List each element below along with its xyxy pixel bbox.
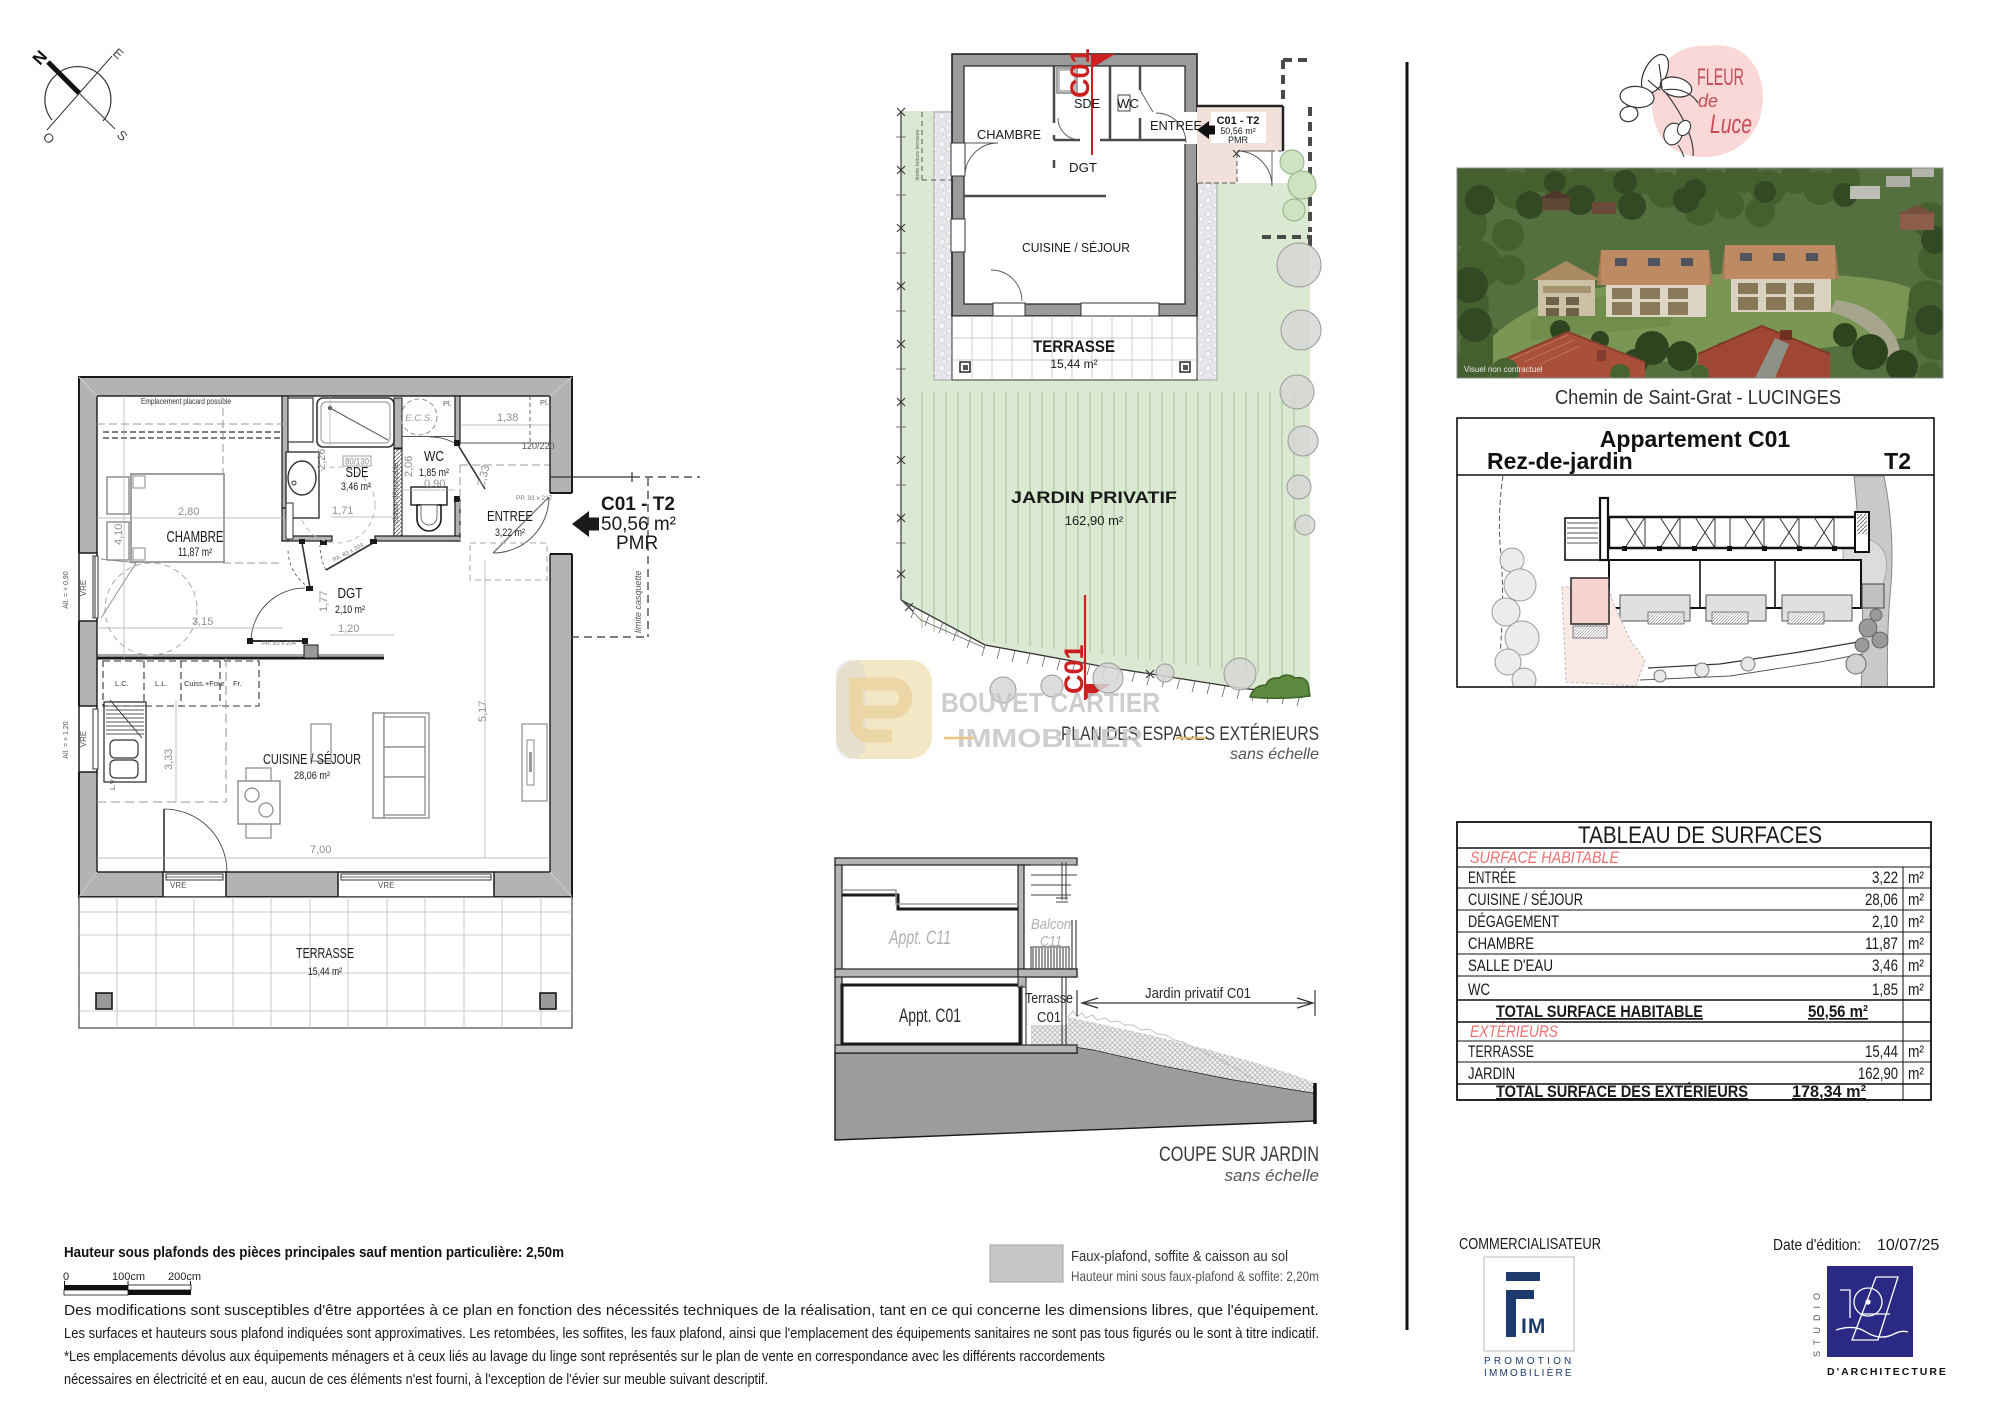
svg-text:m²: m²	[1908, 935, 1924, 953]
svg-text:PA. 83 x 204: PA. 83 x 204	[262, 641, 297, 647]
svg-text:WC: WC	[1117, 96, 1139, 111]
svg-text:120/220: 120/220	[522, 441, 555, 451]
svg-text:TABLEAU DE SURFACES: TABLEAU DE SURFACES	[1578, 822, 1822, 849]
svg-text:SDE: SDE	[346, 464, 369, 481]
svg-text:Les surfaces et hauteurs sous: Les surfaces et hauteurs sous plafond in…	[64, 1325, 1319, 1342]
svg-text:ENTRÉE: ENTRÉE	[1468, 868, 1516, 887]
svg-text:TERRASSE: TERRASSE	[1033, 337, 1115, 356]
svg-text:COUPE SUR JARDIN: COUPE SUR JARDIN	[1159, 1143, 1319, 1166]
svg-text:11,87 m²: 11,87 m²	[178, 547, 212, 559]
svg-text:E: E	[110, 45, 127, 62]
svg-text:DGT: DGT	[338, 585, 363, 602]
svg-text:28,06: 28,06	[1865, 891, 1898, 909]
svg-text:50,56 m²: 50,56 m²	[601, 514, 676, 535]
svg-text:WC: WC	[424, 448, 444, 465]
svg-text:Pl.: Pl.	[540, 398, 549, 407]
svg-text:DÉGAGEMENT: DÉGAGEMENT	[1468, 912, 1559, 931]
svg-text:CHAMBRE: CHAMBRE	[1468, 935, 1534, 953]
svg-text:PMR: PMR	[1228, 135, 1249, 145]
svg-text:C01: C01	[1065, 48, 1095, 98]
svg-text:3,22: 3,22	[1872, 869, 1898, 887]
svg-text:1,85: 1,85	[1872, 981, 1898, 999]
svg-text:Fr.: Fr.	[233, 679, 242, 688]
svg-text:Hauteur sous plafonds des pièc: Hauteur sous plafonds des pièces princip…	[64, 1244, 564, 1261]
svg-text:SURFACE HABITABLE: SURFACE HABITABLE	[1470, 848, 1620, 867]
svg-text:C01: C01	[1037, 1009, 1061, 1026]
svg-text:CHAMBRE: CHAMBRE	[167, 529, 224, 546]
svg-text:15,44: 15,44	[1865, 1043, 1898, 1061]
svg-text:m²: m²	[1908, 913, 1924, 931]
svg-text:2,80: 2,80	[178, 506, 199, 518]
svg-text:VRE: VRE	[170, 881, 186, 890]
svg-text:COMMERCIALISATEUR: COMMERCIALISATEUR	[1459, 1236, 1601, 1253]
svg-text:Chemin de Saint-Grat - LUCINGE: Chemin de Saint-Grat - LUCINGES	[1555, 387, 1841, 409]
svg-text:L.V: L.V	[110, 779, 117, 790]
svg-text:11,87: 11,87	[1865, 935, 1898, 953]
svg-text:CHAMBRE: CHAMBRE	[977, 127, 1041, 142]
svg-text:JARDIN PRIVATIF: JARDIN PRIVATIF	[1011, 488, 1177, 507]
svg-text:EXTÉRIEURS: EXTÉRIEURS	[1470, 1022, 1559, 1041]
svg-text:4,10: 4,10	[113, 524, 125, 545]
svg-text:m²: m²	[1908, 869, 1924, 887]
svg-text:3,33: 3,33	[163, 749, 175, 770]
svg-text:2,10: 2,10	[1872, 913, 1898, 931]
svg-text:Balcon: Balcon	[1031, 916, 1071, 933]
svg-text:1,71: 1,71	[332, 505, 353, 517]
svg-text:Visuel non contractuel: Visuel non contractuel	[1464, 365, 1543, 374]
svg-text:L.L.: L.L.	[155, 679, 168, 688]
svg-text:CUISINE / SÉJOUR: CUISINE / SÉJOUR	[1022, 240, 1130, 255]
svg-text:SALLE D'EAU: SALLE D'EAU	[1468, 957, 1553, 975]
svg-text:2,06: 2,06	[403, 456, 415, 477]
svg-text:Appt. C11: Appt. C11	[888, 928, 951, 949]
svg-text:*Les emplacements dévolus aux: *Les emplacements dévolus aux équipement…	[64, 1348, 1105, 1365]
svg-text:162,90: 162,90	[1858, 1065, 1898, 1083]
svg-text:O: O	[40, 129, 58, 147]
svg-text:All. = + 0,90: All. = + 0,90	[63, 571, 70, 608]
svg-text:162,90 m²: 162,90 m²	[1065, 513, 1124, 528]
svg-text:m²: m²	[1908, 1043, 1924, 1061]
svg-text:m²: m²	[1908, 957, 1924, 975]
svg-text:m²: m²	[1908, 981, 1924, 999]
svg-text:10/07/25: 10/07/25	[1877, 1237, 1939, 1254]
svg-text:IMMOBILIÈRE: IMMOBILIÈRE	[1484, 1366, 1574, 1379]
svg-text:BOUVET CARTIER: BOUVET CARTIER	[941, 687, 1160, 718]
svg-text:Appt. C01: Appt. C01	[899, 1006, 961, 1027]
svg-text:28,06 m²: 28,06 m²	[294, 770, 330, 782]
svg-text:Jardin privatif C01: Jardin privatif C01	[1145, 985, 1251, 1002]
svg-text:Emplacement placard possible: Emplacement placard possible	[141, 396, 231, 406]
svg-text:1,77: 1,77	[318, 591, 330, 612]
svg-text:3,22 m²: 3,22 m²	[495, 527, 525, 539]
svg-text:VRE: VRE	[79, 731, 88, 747]
svg-text:D'ARCHITECTURE: D'ARCHITECTURE	[1827, 1366, 1948, 1378]
svg-text:Cuiss.+Four: Cuiss.+Four	[184, 679, 225, 688]
svg-text:Luce: Luce	[1710, 109, 1752, 139]
svg-text:0: 0	[63, 1271, 69, 1283]
svg-text:sans échelle: sans échelle	[1230, 746, 1319, 763]
svg-text:2,10 m²: 2,10 m²	[335, 604, 365, 616]
svg-text:L.C.: L.C.	[115, 679, 129, 688]
svg-text:3,46: 3,46	[1872, 957, 1898, 975]
svg-text:CUISINE / SÉJOUR: CUISINE / SÉJOUR	[263, 751, 361, 768]
svg-text:7,00: 7,00	[310, 844, 331, 856]
svg-text:TERRASSE: TERRASSE	[296, 946, 354, 962]
svg-text:FLEUR: FLEUR	[1697, 64, 1744, 91]
svg-text:PP. 93 x 217: PP. 93 x 217	[516, 495, 553, 502]
svg-text:ENTREE: ENTREE	[1150, 118, 1202, 133]
svg-text:1,85 m²: 1,85 m²	[419, 467, 449, 479]
svg-text:S: S	[114, 127, 131, 144]
svg-text:80/130: 80/130	[345, 457, 369, 467]
svg-text:PA. 83 x 204: PA. 83 x 204	[332, 542, 365, 564]
svg-text:WC: WC	[1468, 981, 1490, 999]
svg-text:VRE: VRE	[79, 580, 88, 596]
svg-text:178,34 m²: 178,34 m²	[1792, 1082, 1866, 1101]
svg-text:3,46 m²: 3,46 m²	[341, 481, 371, 493]
svg-text:0,90: 0,90	[424, 478, 445, 490]
svg-text:Hauteur mini sous faux-plafond: Hauteur mini sous faux-plafond & soffite…	[1071, 1268, 1319, 1284]
svg-text:DGT: DGT	[1069, 160, 1097, 175]
svg-text:Date d'édition:: Date d'édition:	[1773, 1237, 1861, 1254]
svg-text:STUDIO: STUDIO	[1812, 1287, 1822, 1357]
svg-text:2,33: 2,33	[475, 464, 492, 488]
svg-text:2,26: 2,26	[316, 449, 328, 470]
svg-text:VRE: VRE	[378, 881, 394, 890]
svg-text:1,38: 1,38	[497, 412, 518, 424]
svg-text:PROMOTION: PROMOTION	[1484, 1356, 1574, 1367]
svg-text:N: N	[29, 47, 51, 69]
svg-text:m²: m²	[1908, 891, 1924, 909]
svg-text:Des modifications sont suscept: Des modifications sont susceptibles d'êt…	[64, 1302, 1319, 1319]
svg-text:limite toiture terrasse: limite toiture terrasse	[915, 129, 921, 180]
svg-text:sans échelle: sans échelle	[1224, 1166, 1319, 1185]
svg-text:ENTREE: ENTREE	[487, 508, 533, 525]
svg-text:5,17: 5,17	[477, 701, 489, 722]
svg-text:TOTAL SURFACE DES EXTÉRIEURS: TOTAL SURFACE DES EXTÉRIEURS	[1496, 1082, 1748, 1101]
svg-text:de: de	[1698, 91, 1718, 111]
svg-text:cloison démontable: cloison démontable	[393, 463, 400, 523]
svg-text:3,15: 3,15	[192, 616, 213, 628]
svg-text:SDE: SDE	[1074, 96, 1100, 111]
svg-text:nécessaires en électricité et: nécessaires en électricité et en eau, au…	[64, 1371, 768, 1388]
svg-text:100cm: 100cm	[112, 1271, 145, 1283]
svg-text:JARDIN: JARDIN	[1468, 1065, 1515, 1083]
svg-text:1,20: 1,20	[338, 623, 359, 635]
svg-text:C01 - T2: C01 - T2	[601, 494, 675, 515]
svg-text:15,44 m²: 15,44 m²	[1050, 357, 1097, 371]
svg-text:Rez-de-jardin: Rez-de-jardin	[1487, 448, 1633, 474]
svg-text:50,56 m²: 50,56 m²	[1808, 1002, 1868, 1021]
svg-text:Pl.: Pl.	[443, 399, 452, 408]
svg-text:15,44 m²: 15,44 m²	[308, 966, 342, 978]
svg-text:T2: T2	[1884, 448, 1911, 474]
svg-text:TOTAL SURFACE HABITABLE: TOTAL SURFACE HABITABLE	[1496, 1002, 1703, 1021]
svg-text:TERRASSE: TERRASSE	[1468, 1043, 1534, 1061]
svg-text:m²: m²	[1908, 1065, 1924, 1083]
svg-text:IM: IM	[1521, 1315, 1546, 1338]
svg-text:CUISINE / SÉJOUR: CUISINE / SÉJOUR	[1468, 890, 1583, 909]
svg-text:PMR: PMR	[616, 533, 658, 554]
svg-text:200cm: 200cm	[168, 1271, 201, 1283]
svg-text:limite casquette: limite casquette	[633, 570, 643, 633]
svg-text:E.C.S.: E.C.S.	[405, 413, 432, 424]
svg-text:Faux-plafond, soffite & caisso: Faux-plafond, soffite & caisson au sol	[1071, 1248, 1288, 1265]
svg-text:IMMOBILIER: IMMOBILIER	[957, 723, 1143, 753]
svg-text:All. = + 1,20: All. = + 1,20	[63, 721, 70, 758]
